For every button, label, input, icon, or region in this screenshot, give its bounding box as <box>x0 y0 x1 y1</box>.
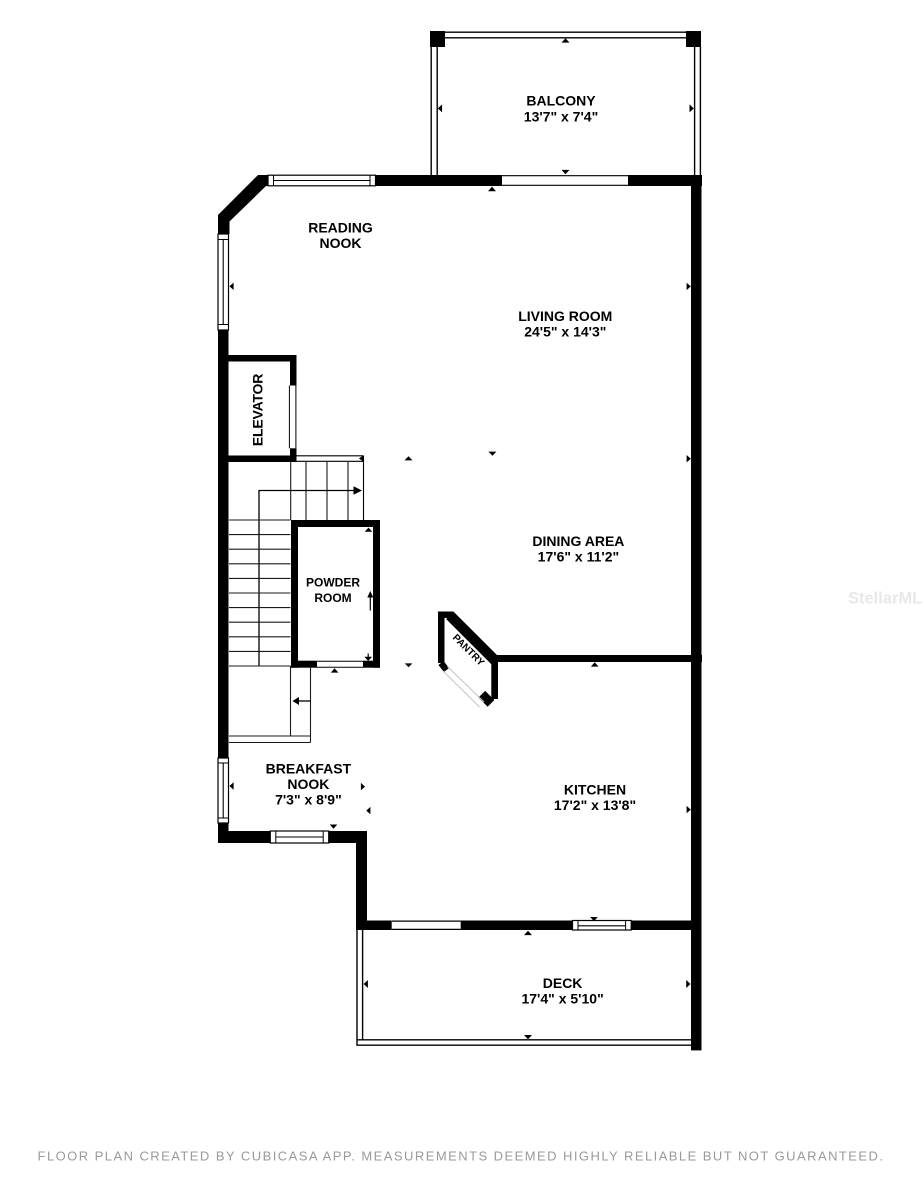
svg-text:BREAKFAST: BREAKFAST <box>266 761 352 777</box>
svg-text:NOOK: NOOK <box>287 776 329 792</box>
svg-text:DECK: DECK <box>543 975 583 991</box>
svg-text:BALCONY: BALCONY <box>526 93 596 109</box>
svg-text:POWDER: POWDER <box>306 576 360 590</box>
svg-text:READING: READING <box>308 220 373 236</box>
svg-text:ROOM: ROOM <box>314 591 351 605</box>
svg-text:ELEVATOR: ELEVATOR <box>250 374 266 446</box>
svg-text:17'4" x 5'10": 17'4" x 5'10" <box>521 990 603 1006</box>
svg-text:KITCHEN: KITCHEN <box>564 782 626 798</box>
svg-text:13'7" x 7'4": 13'7" x 7'4" <box>524 109 598 125</box>
svg-text:24'5" x 14'3": 24'5" x 14'3" <box>524 324 606 340</box>
svg-text:LIVING ROOM: LIVING ROOM <box>518 308 612 324</box>
svg-text:17'2" x 13'8": 17'2" x 13'8" <box>554 797 636 813</box>
svg-text:StellarMLS: StellarMLS <box>848 590 923 608</box>
svg-text:NOOK: NOOK <box>320 235 362 251</box>
svg-text:17'6" x 11'2": 17'6" x 11'2" <box>538 548 619 564</box>
svg-text:7'3" x 8'9": 7'3" x 8'9" <box>275 792 342 808</box>
svg-text:DINING AREA: DINING AREA <box>532 533 624 549</box>
svg-text:FLOOR PLAN CREATED BY CUBICASA: FLOOR PLAN CREATED BY CUBICASA APP. MEAS… <box>38 1149 885 1164</box>
